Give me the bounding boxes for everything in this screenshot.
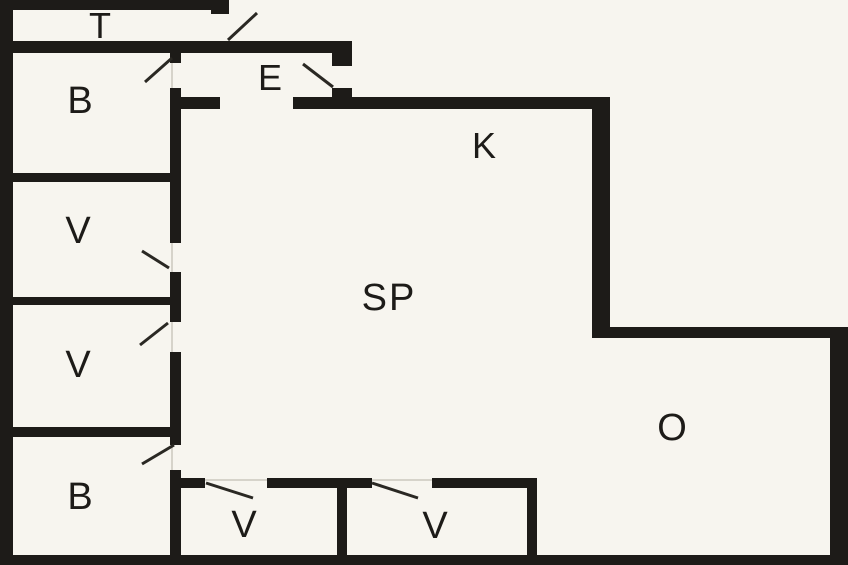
door-swing-layer bbox=[0, 0, 848, 565]
room-label-o: O bbox=[657, 409, 689, 447]
door-swing-v-upper-2 bbox=[140, 323, 168, 345]
room-label-b-upper: B bbox=[67, 82, 94, 120]
door-swing-v-bottom-2 bbox=[372, 483, 418, 498]
door-swing-v-bottom-1 bbox=[206, 483, 253, 498]
room-label-sp: SP bbox=[362, 279, 417, 317]
room-label-v-upper-2: V bbox=[65, 346, 92, 384]
door-swing-b-upper bbox=[145, 58, 172, 82]
door-swing-entrance bbox=[228, 13, 257, 40]
room-label-b-lower: B bbox=[67, 478, 94, 516]
door-swing-v-upper-1 bbox=[142, 251, 169, 268]
room-label-k: K bbox=[472, 128, 498, 164]
room-label-e: E bbox=[258, 60, 284, 96]
room-label-t: T bbox=[89, 8, 113, 44]
floor-plan-canvas: T B V V B E K SP V V O bbox=[0, 0, 848, 565]
door-swing-e bbox=[303, 64, 333, 87]
room-label-v-bottom-2: V bbox=[422, 507, 449, 545]
door-swing-b-lower bbox=[142, 445, 174, 464]
room-label-v-bottom-1: V bbox=[231, 506, 258, 544]
room-label-v-upper-1: V bbox=[65, 212, 92, 250]
